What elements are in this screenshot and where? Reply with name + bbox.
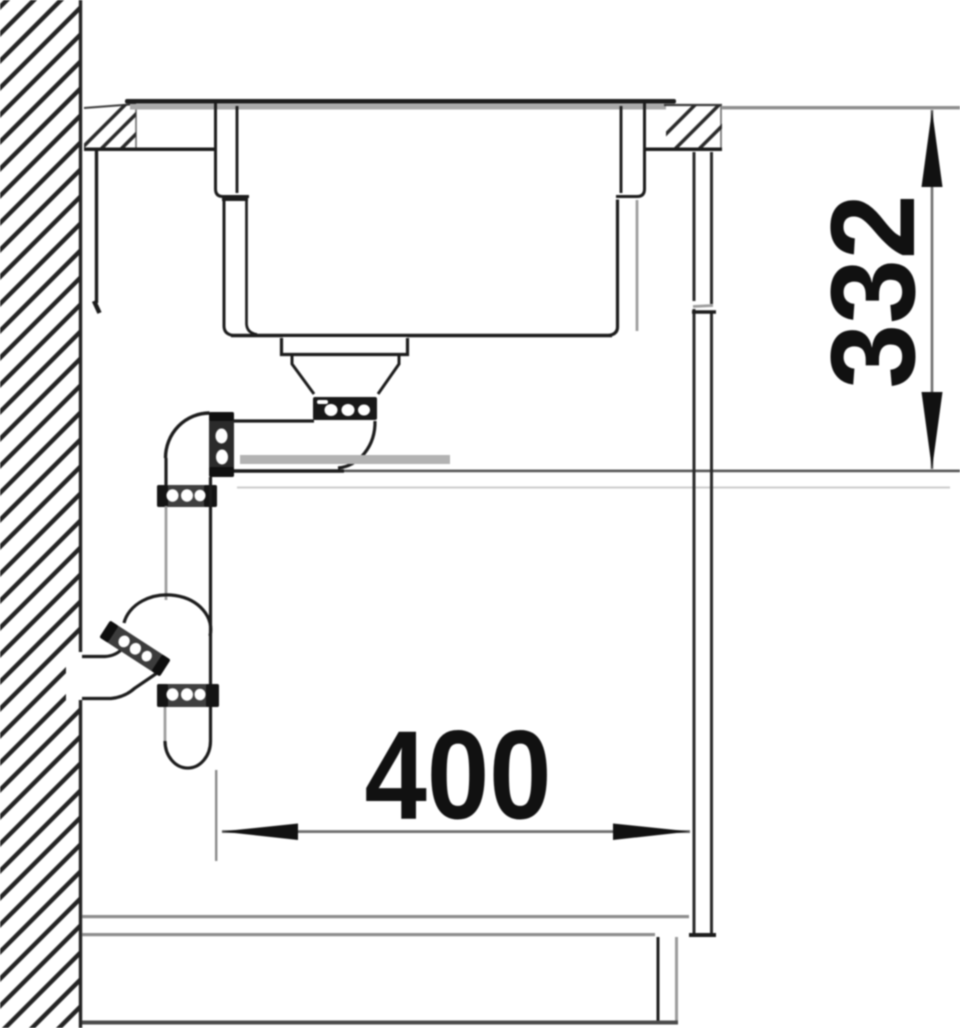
svg-text:400: 400 [364,705,551,846]
svg-text:332: 332 [806,194,940,388]
